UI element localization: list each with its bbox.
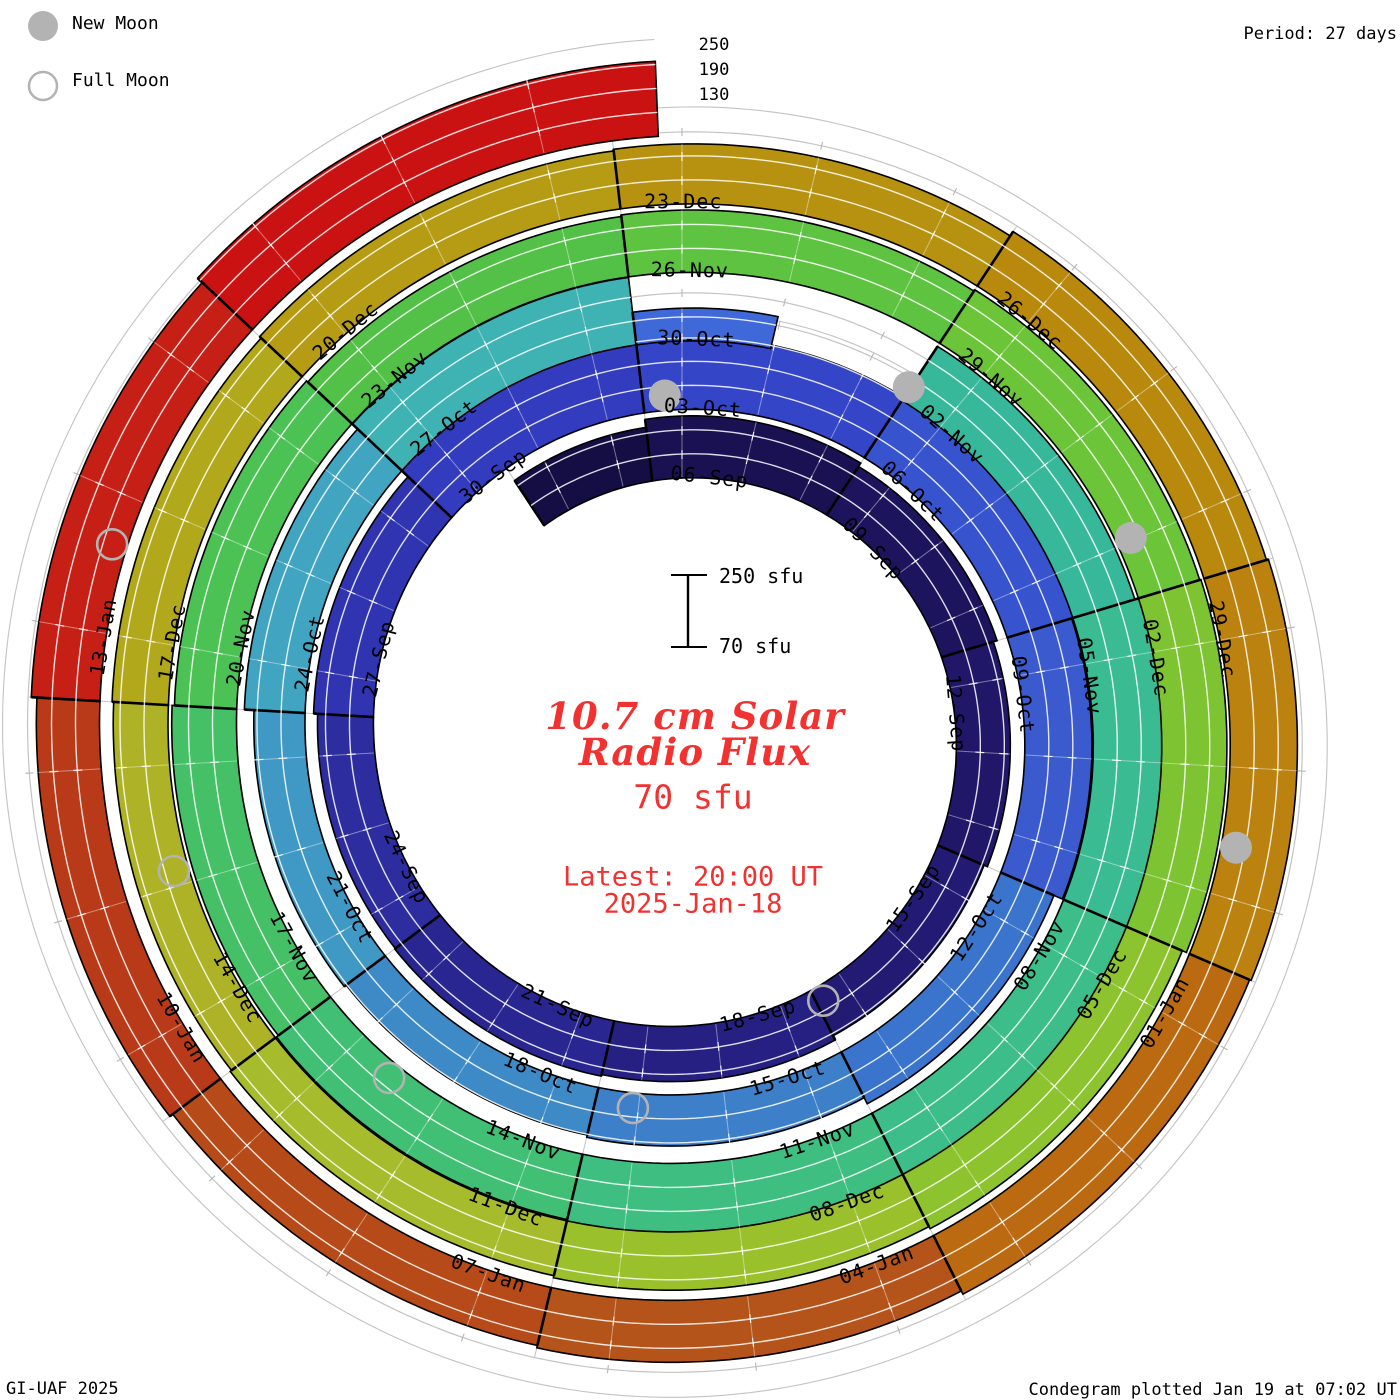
day-tick-white xyxy=(142,766,151,767)
day-tick-white xyxy=(254,759,263,760)
new-moon-marker xyxy=(1115,522,1147,554)
day-tick-white xyxy=(1249,768,1258,769)
day-tick xyxy=(755,1363,756,1371)
day-tick-white xyxy=(118,767,127,768)
day-tick xyxy=(117,1057,124,1061)
legend-new-moon-label: New Moon xyxy=(72,13,159,34)
radial-axis-tick-190: 190 xyxy=(699,60,730,80)
day-tick xyxy=(1287,627,1295,628)
current-flux-value: 70 sfu xyxy=(633,778,752,817)
radial-axis-tick-130: 130 xyxy=(699,85,730,105)
day-tick-white xyxy=(347,754,356,755)
condegram-page: 06-Sep09-Sep12-Sep15-Sep18-Sep21-Sep24-S… xyxy=(0,0,1400,1400)
day-tick-white xyxy=(1136,761,1145,762)
new-moon-marker xyxy=(893,371,925,403)
date-label: 30-Oct xyxy=(657,325,736,352)
credit-left: GI-UAF 2025 xyxy=(6,1379,119,1399)
day-tick-white xyxy=(278,758,287,759)
day-tick-white xyxy=(975,752,984,753)
day-tick-white xyxy=(73,770,82,771)
day-tick-white xyxy=(1044,756,1053,757)
day-tick-white xyxy=(1112,760,1121,761)
day-tick-white xyxy=(1273,769,1282,770)
day-tick-white xyxy=(1180,764,1189,765)
day-tick-white xyxy=(210,762,219,763)
day-tick xyxy=(1171,366,1177,371)
day-tick xyxy=(326,1269,330,1276)
day-tick-white xyxy=(1068,757,1077,758)
new-moon-icon xyxy=(27,10,59,42)
scalebar-bottom-label: 70 sfu xyxy=(719,634,791,658)
day-tick-white xyxy=(999,753,1008,754)
day-tick-white xyxy=(49,771,58,772)
new-moon-marker xyxy=(1220,832,1252,864)
day-tick-white xyxy=(323,755,332,756)
credit-right: Condegram plotted Jan 19 at 07:02 UT xyxy=(1029,1380,1397,1400)
date-label: 26-Nov xyxy=(650,257,729,282)
day-tick-white xyxy=(186,763,195,764)
scalebar-top-label: 250 sfu xyxy=(719,564,803,588)
day-tick xyxy=(607,1365,608,1373)
date-label: 23-Dec xyxy=(644,189,722,213)
day-tick-white xyxy=(1204,765,1213,766)
date-label: 12-Sep xyxy=(941,673,971,753)
latest-date-label: 2025-Jan-18 xyxy=(604,889,783,920)
scalebar-graphic xyxy=(671,575,707,647)
legend-full-moon-label: Full Moon xyxy=(72,70,170,91)
period-note: Period: 27 days xyxy=(1243,24,1397,44)
full-moon-icon xyxy=(27,70,59,102)
radial-axis-tick-250: 250 xyxy=(699,35,730,55)
chart-title-line2: Radio Flux xyxy=(579,730,811,774)
day-tick xyxy=(1221,1046,1228,1050)
date-label: 03-Oct xyxy=(663,393,743,422)
day-tick xyxy=(1027,1259,1031,1266)
